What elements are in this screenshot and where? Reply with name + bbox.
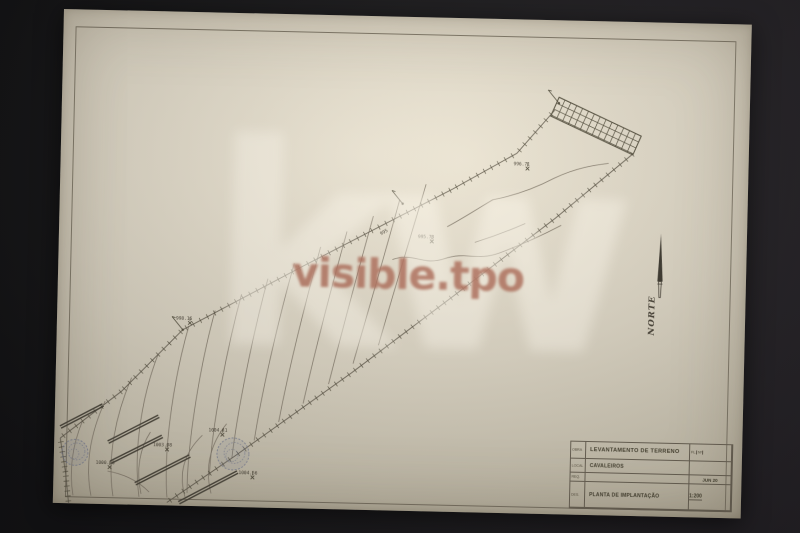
boundary-tick: [504, 157, 507, 162]
boundary-tick: [262, 433, 265, 438]
boundary-tick: [360, 363, 364, 367]
boundary-tick: [468, 282, 472, 286]
hatch-line: [598, 119, 606, 138]
spot-elevation-label: 1000.16: [96, 460, 115, 466]
contour-line: [232, 278, 268, 459]
boundary-tick: [234, 299, 237, 304]
boundary-tick: [490, 165, 493, 170]
boundary-tick: [476, 173, 479, 178]
boundary-tick: [64, 486, 70, 487]
contour-label: 995: [379, 228, 389, 237]
boundary-tick: [295, 410, 298, 415]
boundary-tick: [512, 248, 516, 252]
boundary-tick: [480, 272, 484, 276]
boundary-tick: [538, 228, 542, 232]
north-label: NORTE: [647, 295, 658, 336]
boundary-tick: [289, 414, 292, 419]
contour-line: [303, 231, 347, 405]
boundary-tick: [276, 424, 279, 429]
boundary-tick: [430, 310, 434, 314]
contour-line: [182, 435, 203, 497]
survey-marker-flag: [548, 90, 559, 103]
boundary-tick: [506, 252, 510, 256]
spot-elevation-label: 996.71: [514, 161, 531, 167]
hatch-line: [604, 122, 612, 141]
title-block-field2-label: LOCAL: [571, 459, 586, 473]
contour-line: [475, 222, 525, 243]
contour-line: [392, 222, 561, 264]
boundary-tick: [249, 442, 252, 447]
boundary-tick: [483, 169, 486, 174]
boundary-tick: [195, 480, 198, 485]
hatch-line: [609, 125, 617, 144]
boundary-tick: [81, 419, 85, 423]
hatch-line: [568, 105, 576, 124]
boundary-tick: [341, 377, 344, 382]
boundary-tick: [113, 395, 117, 399]
title-block-field3-label: REQ.: [570, 473, 585, 482]
boundary-tick: [550, 218, 554, 222]
boundary-tick: [462, 181, 465, 186]
wall-line: [135, 454, 190, 484]
boundary-tick: [315, 396, 318, 401]
spot-elevation-label: 1004.41: [208, 427, 227, 433]
contour-line: [254, 262, 294, 441]
boundary-tick: [347, 372, 350, 377]
spot-elevation-label: 995.73: [418, 234, 435, 240]
boundary-tick: [379, 349, 383, 353]
title-block-corner: FL. Nº: [690, 444, 732, 462]
boundary-tick: [206, 314, 209, 319]
contour-line: [447, 160, 608, 231]
north-arrow: NORTE: [647, 233, 664, 336]
spot-elevation-label: 1003.98: [153, 442, 172, 448]
boundary-tick: [372, 354, 376, 358]
hatch-line: [627, 133, 635, 152]
boundary-tick: [404, 329, 408, 333]
drawing-scale: 1:200: [689, 493, 702, 500]
boundary-tick: [220, 307, 223, 312]
corner-b: Nº: [697, 450, 703, 454]
boundary-tick: [277, 277, 280, 282]
boundary-tick: [392, 339, 396, 343]
boundary-tick: [269, 428, 272, 433]
hatch-line: [586, 114, 594, 133]
hatch-line: [592, 117, 600, 136]
boundary-tick: [455, 291, 459, 295]
boundary-tick: [366, 358, 370, 362]
title-block: OBRA LEVANTAMENTO DE TERRENO FL. Nº LOCA…: [569, 441, 734, 513]
boundary-tick: [256, 288, 259, 293]
title-block-field1-label: OBRA: [571, 442, 586, 459]
boundary-tick: [493, 262, 497, 266]
boundary-tick: [385, 344, 389, 348]
boundary-tick: [66, 501, 72, 502]
boundary-tick: [270, 281, 273, 286]
boundary-tick: [249, 292, 252, 297]
boundary-tick: [474, 277, 478, 281]
boundary-tick: [353, 368, 357, 372]
boundary-tick: [461, 286, 465, 290]
boundary-tick: [213, 310, 216, 315]
boundary-tick: [511, 153, 514, 158]
boundary-tick: [487, 267, 491, 271]
boundary-tick: [201, 475, 204, 480]
boundary-tick: [256, 437, 259, 442]
hatch-line: [550, 115, 634, 154]
drawing-title: PLANTA DE IMPLANTAÇÃO: [585, 482, 690, 510]
hatch-line: [574, 108, 582, 127]
boundary-tick: [188, 484, 191, 489]
hatch-line: [621, 130, 629, 149]
boundary-tick: [284, 273, 287, 278]
boundary-tick: [175, 493, 178, 498]
boundary-tick: [185, 325, 188, 330]
boundary-tick: [282, 419, 285, 424]
hatch-line: [580, 111, 588, 130]
boundary-tick: [328, 386, 331, 391]
boundary-tick: [106, 399, 110, 403]
hatch-line: [557, 100, 565, 119]
boundary-tick: [424, 315, 428, 319]
spot-elevation-label: 1004.56: [238, 470, 257, 476]
boundary-tick: [192, 322, 195, 327]
boundary-tick: [263, 284, 266, 289]
boundary-tick: [62, 433, 66, 437]
spot-elevation-label: 998.16: [176, 316, 193, 322]
boundary-tick: [469, 177, 472, 182]
boundary-tick: [241, 296, 244, 301]
boundary-tick: [199, 318, 202, 323]
contour-line: [166, 325, 189, 497]
boundary-tick: [74, 424, 78, 428]
boundary-tick: [531, 233, 535, 237]
contour-line: [279, 246, 321, 423]
boundary-tick: [499, 257, 503, 261]
boundary-tick: [63, 476, 69, 477]
boundary-tick: [398, 334, 402, 338]
boundary-tick: [308, 400, 311, 405]
contour-line: [353, 199, 400, 365]
boundary-tick: [455, 184, 458, 189]
boundary-tick: [497, 161, 500, 166]
survey-marker-flag: [392, 190, 403, 203]
boundary-tick: [68, 429, 72, 433]
boundary-tick: [436, 305, 440, 309]
scale-cell: 1:200: [689, 484, 732, 511]
boundary-tick: [227, 303, 230, 308]
boundary-tick: [443, 301, 447, 305]
paper-sheet: 996.71995.73998.161003.981004.411004.561…: [53, 9, 752, 518]
upper-boundary: [60, 99, 555, 449]
boundary-tick: [334, 382, 337, 387]
boundary-tick: [544, 223, 548, 227]
boundary-tick: [411, 325, 415, 329]
title-block-field4-label: DES.: [570, 482, 586, 508]
contour-line: [187, 310, 215, 493]
boundary-tick: [64, 481, 70, 482]
hatch-line: [556, 103, 640, 142]
boundary-tick: [302, 405, 305, 410]
photo-of-drawing: 996.71995.73998.161003.981004.411004.561…: [0, 0, 800, 533]
north-needle-icon: [657, 234, 663, 282]
boundary-tick: [417, 320, 421, 324]
boundary-tick: [215, 466, 218, 471]
boundary-tick: [298, 266, 301, 271]
boundary-tick: [321, 391, 324, 396]
hatch-line: [562, 103, 570, 122]
hatch-line: [615, 128, 623, 147]
boundary-tick: [449, 296, 453, 300]
